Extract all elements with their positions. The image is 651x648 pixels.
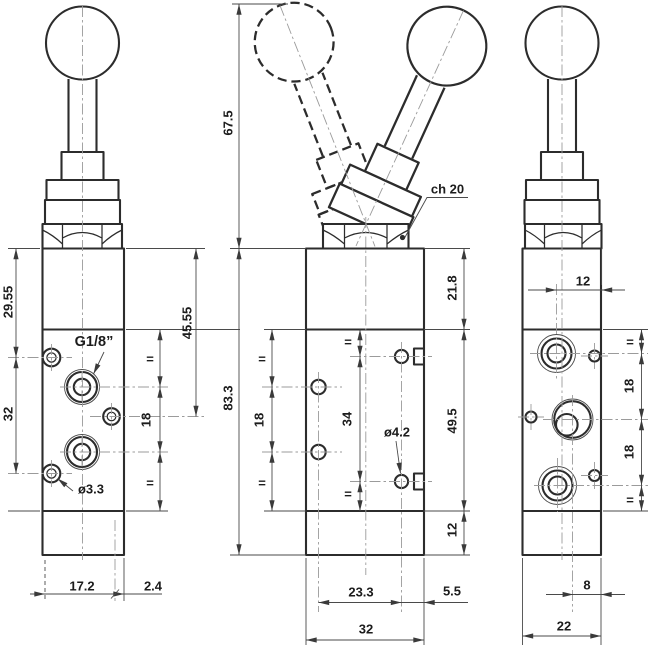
dim-29-55: 29.55 xyxy=(1,286,16,319)
port-thread-label: G1/8” xyxy=(75,334,114,350)
dim-34: 34 xyxy=(340,411,355,426)
dim-32-width: 32 xyxy=(359,622,373,637)
dim-12-bottom: 12 xyxy=(445,523,460,537)
equal-mark-top: = xyxy=(146,352,154,367)
equal-bottom: = xyxy=(626,493,634,508)
dim-83-3: 83.3 xyxy=(221,385,236,410)
dim-17-2: 17.2 xyxy=(69,579,94,594)
right-hex-nut xyxy=(525,224,602,249)
drill-4-2-label: ø4.2 xyxy=(384,425,410,440)
dim-2-4: 2.4 xyxy=(144,579,163,594)
dim-5-5: 5.5 xyxy=(443,584,461,599)
dim-67-5: 67.5 xyxy=(221,110,236,135)
dim-18-lower: 18 xyxy=(622,445,637,459)
dim-49-5: 49.5 xyxy=(445,408,460,433)
dim-45-55: 45.55 xyxy=(180,307,195,340)
mount-equal-bottom: = xyxy=(344,487,352,502)
equal-top: = xyxy=(626,335,634,350)
middle-view: 67.5 83.3 = 18 = = 34 = 21.8 49.5 12 23.… xyxy=(221,0,501,645)
pilot-equal-bottom: = xyxy=(258,476,266,491)
middle-valve-body xyxy=(306,249,424,556)
left-view: 29.55 32 45.55 = 18 = 17.2 2.4 G1/8” ø3.… xyxy=(1,6,241,601)
dim-pilot-18: 18 xyxy=(252,413,267,427)
leader-dot xyxy=(400,235,405,240)
dim-18-upper: 18 xyxy=(622,379,637,393)
equal-mark-bottom: = xyxy=(146,476,154,491)
dim-32: 32 xyxy=(1,407,16,421)
hex-size-label: ch 20 xyxy=(431,182,464,197)
drill-3-3-label: ø3.3 xyxy=(78,482,104,497)
dim-8: 8 xyxy=(583,578,590,593)
valve-technical-drawing: 29.55 32 45.55 = 18 = 17.2 2.4 G1/8” ø3.… xyxy=(0,0,651,648)
middle-lever xyxy=(329,0,500,241)
dim-21-8: 21.8 xyxy=(445,275,460,300)
mount-equal-top: = xyxy=(344,335,352,350)
dim-12-depth: 12 xyxy=(576,274,590,289)
pilot-equal-top: = xyxy=(258,352,266,367)
lever-ball-dashed xyxy=(243,0,345,93)
drawing-page: 29.55 32 45.55 = 18 = 17.2 2.4 G1/8” ø3.… xyxy=(0,0,651,648)
lever-ball xyxy=(395,0,499,98)
dim-23-3: 23.3 xyxy=(348,585,373,600)
dim-22: 22 xyxy=(557,619,571,634)
dim-18: 18 xyxy=(139,413,154,427)
right-view: 12 = 18 18 = 8 22 xyxy=(518,6,648,645)
